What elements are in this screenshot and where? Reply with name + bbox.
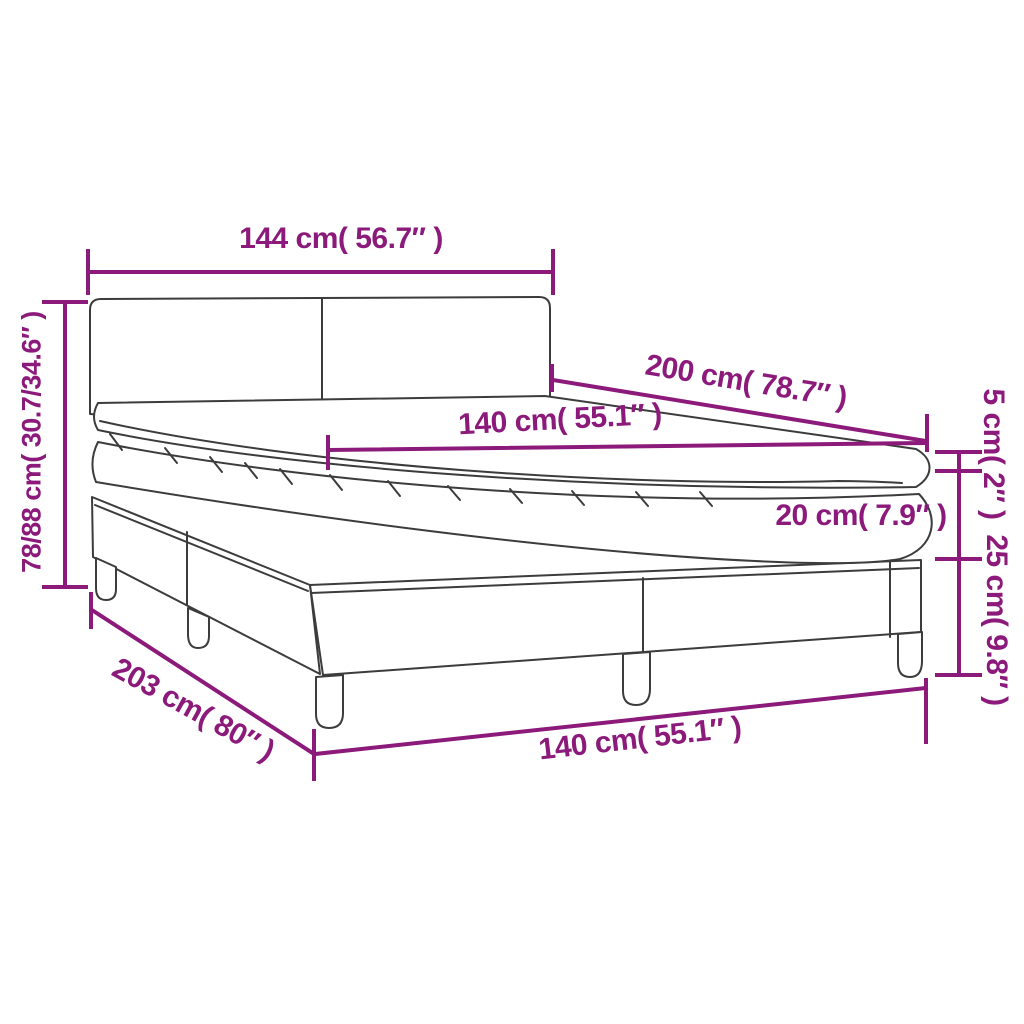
leg [316, 675, 343, 728]
dim-label-topper-height: 5 cm( 2″ ) [976, 388, 1010, 519]
dim-label-total-height: 78/88 cm( 30.7/34.6″ ) [17, 311, 48, 573]
leg [623, 652, 650, 705]
bed-dimension-diagram: 144 cm( 56.7″ ) 200 cm( 78.7″ ) 140 cm( … [0, 0, 1024, 1024]
dim-total-height [44, 302, 86, 587]
dim-label-mattress-height: 20 cm( 7.9″ ) [775, 499, 946, 533]
dim-label-base-height: 25 cm( 9.8″ ) [979, 534, 1013, 705]
dim-headboard-width [88, 251, 553, 293]
dim-label-headboard-width: 144 cm( 56.7″ ) [239, 222, 443, 256]
leg [898, 632, 922, 677]
dim-height-stack [937, 452, 980, 675]
